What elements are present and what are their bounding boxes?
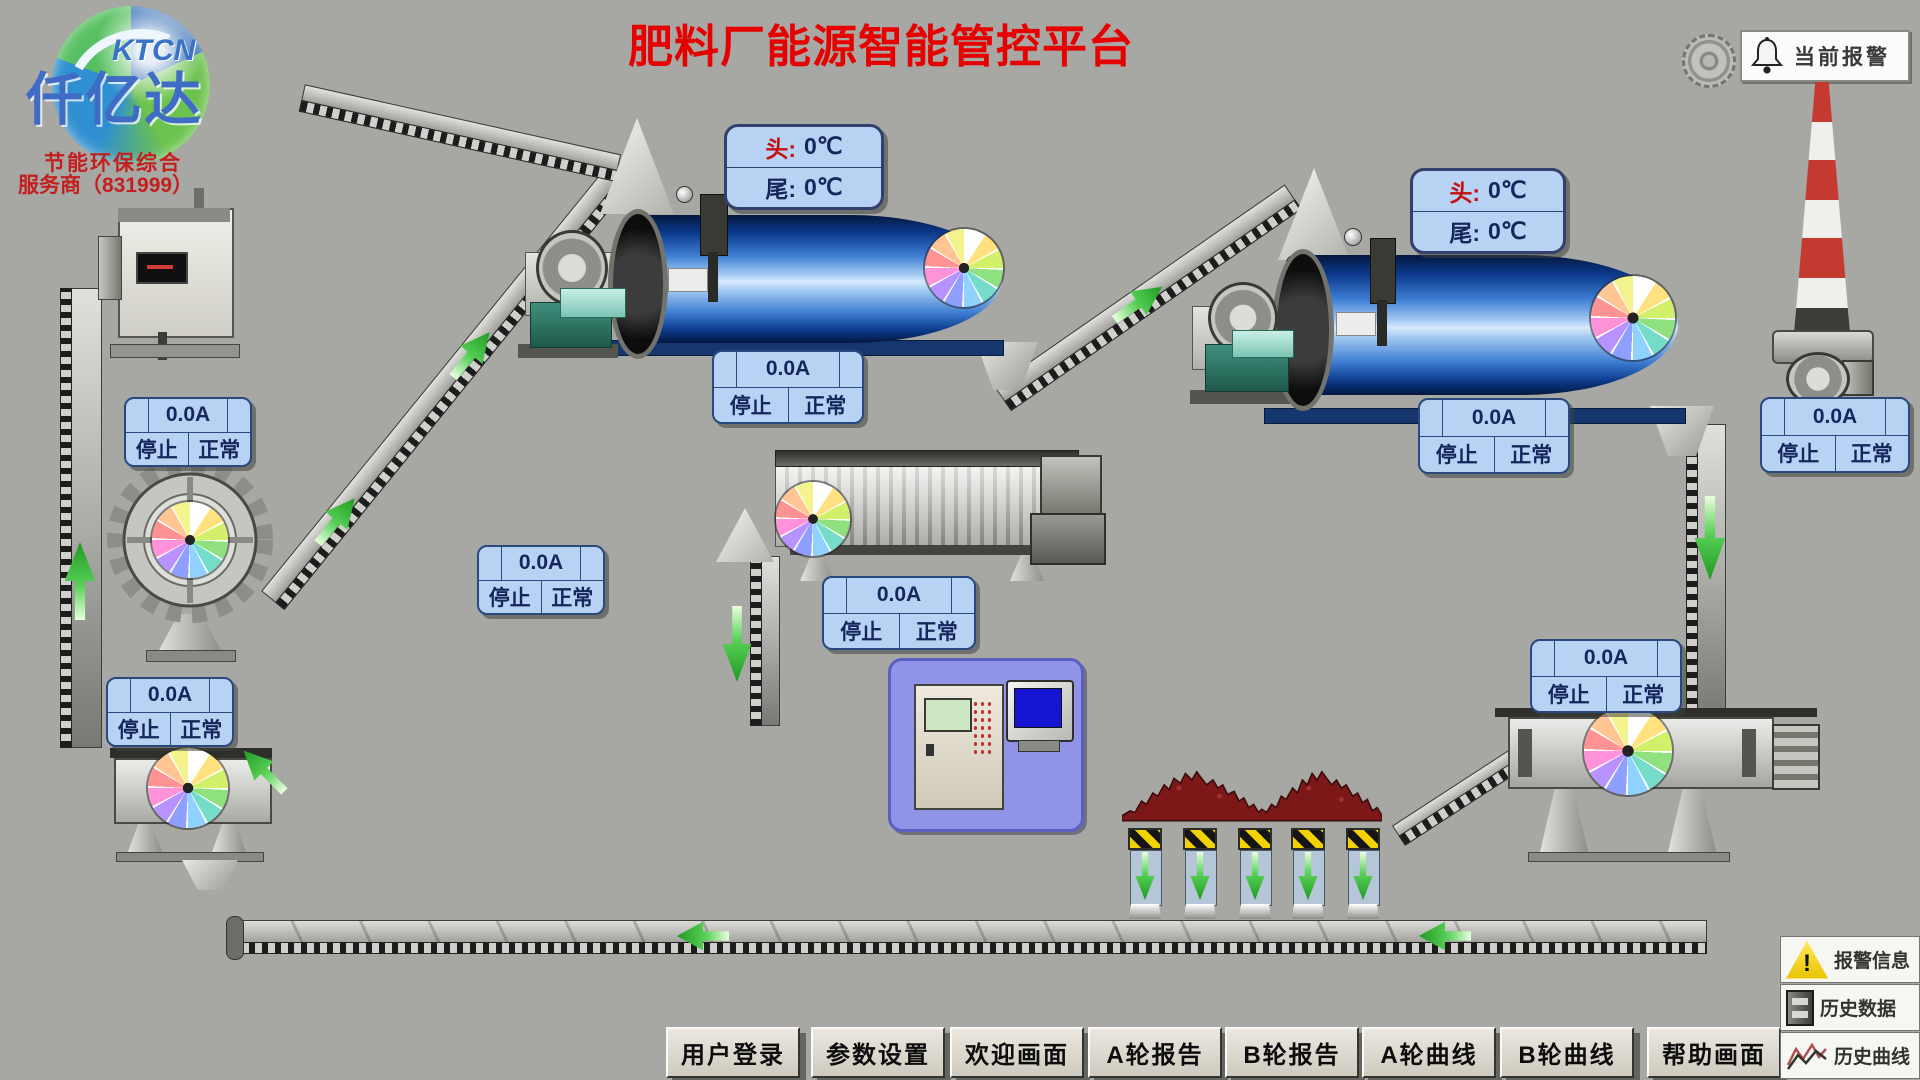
dryer-b-gauge-ball: [1344, 228, 1362, 246]
dryer-b-hatch: [1336, 312, 1376, 336]
material-piles: [1122, 758, 1382, 828]
bagging-station: [1183, 828, 1217, 920]
bottom-return-belt: [235, 920, 1707, 952]
nav-button-label: A轮曲线: [1380, 1035, 1477, 1070]
status-panel-right-screen: 0.0A 停止正常: [1530, 639, 1682, 713]
head-temp-value: 0℃: [1488, 177, 1527, 204]
hazard-stripe-block: [1183, 828, 1217, 850]
brand-cn-label: 仟亿达: [26, 54, 203, 136]
monitor-screen: [1014, 688, 1062, 728]
dryer-a-motor-top: [560, 288, 626, 318]
dryer-b-motor-top: [1232, 330, 1294, 358]
current-value: 0.0A: [131, 679, 209, 712]
bell-icon: [1750, 36, 1784, 76]
page-title: 肥料厂能源智能管控平台: [628, 10, 1134, 75]
hazard-stripe-block: [1346, 828, 1380, 850]
crusher-feed-chute: [716, 508, 774, 562]
hazard-stripe-block: [1128, 828, 1162, 850]
bagging-station: [1346, 828, 1380, 920]
current-alarm-button[interactable]: 当前报警: [1740, 30, 1910, 82]
feeder-base: [110, 344, 240, 358]
cabinet-button-grid: [972, 700, 994, 758]
temp-panel-dryer-a: 头: 0℃ 尾: 0℃: [724, 124, 884, 210]
nav-button-label: 帮助画面: [1662, 1035, 1766, 1070]
nav-button-welcome-screen[interactable]: 欢迎画面: [950, 1027, 1084, 1078]
health-state: 正常: [1836, 436, 1909, 472]
alarm-info-label: 报警信息: [1834, 946, 1910, 973]
status-panel-feed-conveyor: 0.0A 停止正常: [477, 545, 605, 615]
health-state: 正常: [189, 433, 251, 466]
nav-button-label: 参数设置: [826, 1035, 930, 1070]
run-state: 停止: [126, 433, 189, 466]
bagging-station: [1128, 828, 1162, 920]
dryer-b-sensor-rod: [1377, 300, 1387, 346]
nav-button-label: B轮曲线: [1518, 1035, 1615, 1070]
screen-right-drive-block: [1772, 724, 1820, 790]
current-value: 0.0A: [1443, 400, 1545, 436]
nav-button-label: 用户登录: [681, 1035, 785, 1070]
run-state: 停止: [1420, 437, 1495, 473]
conveyor-chain: [235, 942, 1707, 954]
dryer-a-sensor-rod: [708, 252, 718, 302]
run-state: 停止: [1762, 436, 1836, 472]
health-state: 正常: [1495, 437, 1569, 473]
head-temp-label: 头:: [765, 130, 796, 164]
feeder-pedestal-base: [146, 650, 236, 662]
screen-right-leg: [1668, 786, 1716, 852]
health-state: 正常: [171, 713, 233, 746]
status-panel-stack-fan: 0.0A 停止正常: [1760, 397, 1910, 473]
screen-left-leg: [212, 822, 246, 852]
crusher-feed-elevator: [752, 556, 780, 726]
archive-cabinet-icon: [1786, 990, 1814, 1026]
nav-button-parameter-settings[interactable]: 参数设置: [811, 1027, 945, 1078]
history-curve-button[interactable]: 历史曲线: [1780, 1032, 1920, 1079]
conveyor-chain: [750, 556, 762, 726]
feeder-valve-stack: [98, 236, 122, 300]
belt-end-drum: [226, 916, 244, 960]
cabinet-screen: [924, 698, 972, 732]
filled-bag: [1292, 904, 1324, 919]
current-value: 0.0A: [737, 352, 839, 387]
filled-bag: [1347, 904, 1379, 919]
health-state: 正常: [900, 614, 975, 649]
zigzag-curve-icon: [1786, 1041, 1828, 1071]
screen-right-base: [1528, 852, 1730, 862]
incline-conveyor-feeder-to-dryer-a: [261, 158, 635, 609]
screen-left-leg: [128, 822, 162, 852]
warning-exclamation: !: [1786, 950, 1828, 978]
top-feed-duct: [299, 84, 621, 180]
status-panel-left-screen: 0.0A 停止正常: [106, 677, 234, 747]
hazard-stripe-block: [1291, 828, 1325, 850]
nav-button-b-curve[interactable]: B轮曲线: [1500, 1027, 1634, 1078]
tail-temp-value: 0℃: [804, 174, 843, 201]
dryer-a-front-ring: [608, 209, 668, 359]
nav-button-label: A轮报告: [1106, 1035, 1203, 1070]
cabinet-handle: [926, 744, 934, 756]
dryer-a-gauge-ball: [676, 186, 693, 203]
hazard-stripe-block: [1238, 828, 1272, 850]
alarm-info-button[interactable]: ! 报警信息: [1780, 936, 1920, 983]
smokestack: [1794, 82, 1850, 334]
current-value: 0.0A: [1785, 399, 1885, 435]
nav-button-a-curve[interactable]: A轮曲线: [1362, 1027, 1496, 1078]
run-state: 停止: [108, 713, 171, 746]
status-panel-dryer-b: 0.0A 停止正常: [1418, 398, 1570, 474]
nav-button-user-login[interactable]: 用户登录: [666, 1027, 800, 1078]
dryer-b-pinwheel: [1591, 276, 1675, 360]
conveyor-chain: [299, 100, 618, 182]
conveyor-chain: [60, 288, 72, 748]
logo-tagline-line2: 服务商（831999）: [18, 169, 193, 199]
screen-right-leg: [1540, 786, 1588, 852]
run-state: 停止: [479, 581, 542, 614]
current-value: 0.0A: [1555, 641, 1657, 676]
status-panel-crusher: 0.0A 停止正常: [822, 576, 976, 650]
scada-screen: KTCN 仟亿达 节能环保综合 服务商（831999） 肥料厂能源智能管控平台 …: [0, 0, 1920, 1080]
health-state: 正常: [1607, 677, 1681, 712]
conveyor-chain: [1686, 424, 1698, 718]
warning-triangle-icon: !: [1786, 941, 1828, 979]
nav-button-help-screen[interactable]: 帮助画面: [1647, 1027, 1781, 1078]
crusher-top-rail: [775, 450, 1079, 467]
history-curve-label: 历史曲线: [1834, 1042, 1910, 1069]
status-panel-dryer-a: 0.0A 停止正常: [712, 350, 864, 424]
nav-button-label: B轮报告: [1243, 1035, 1340, 1070]
crusher-motor-upper: [1040, 455, 1102, 517]
rotary-feeder-pinwheel: [152, 502, 228, 578]
nav-button-b-report[interactable]: B轮报告: [1225, 1027, 1359, 1078]
screen-left-pinwheel: [148, 748, 228, 828]
tail-temp-value: 0℃: [1488, 218, 1527, 245]
feeder-display: [136, 252, 188, 284]
flow-arrow-down: [722, 606, 752, 682]
history-data-label: 历史数据: [1820, 994, 1896, 1021]
bagging-station: [1238, 828, 1272, 920]
dryer-b-sensor: [1370, 238, 1396, 304]
tail-temp-label: 尾:: [1449, 214, 1480, 248]
crusher-motor-lower: [1030, 513, 1106, 565]
run-state: 停止: [714, 388, 789, 423]
screen-left-discharge: [182, 860, 238, 890]
status-panel-rotary-feeder: 0.0A 停止正常: [124, 397, 252, 467]
current-value: 0.0A: [149, 399, 227, 432]
target-rings-icon: [1682, 34, 1736, 88]
head-temp-label: 头:: [1449, 174, 1480, 208]
filled-bag: [1239, 904, 1271, 919]
health-state: 正常: [542, 581, 604, 614]
filled-bag: [1129, 904, 1161, 919]
history-data-button[interactable]: 历史数据: [1780, 984, 1920, 1031]
dryer-a-sensor: [700, 194, 728, 256]
bucket-elevator-left: [62, 288, 102, 748]
run-state: 停止: [1532, 677, 1607, 712]
dryer-a-pinwheel: [925, 229, 1003, 307]
current-value: 0.0A: [502, 547, 580, 580]
crusher-pinwheel: [776, 482, 850, 556]
dryer-a-hatch: [668, 268, 708, 292]
dryer-b-motor-base: [1190, 390, 1294, 404]
run-state: 停止: [824, 614, 900, 649]
bagging-station: [1291, 828, 1325, 920]
head-temp-value: 0℃: [804, 133, 843, 160]
current-alarm-label: 当前报警: [1794, 41, 1890, 71]
nav-button-label: 欢迎画面: [965, 1035, 1069, 1070]
tail-temp-label: 尾:: [765, 170, 796, 204]
screen-right-pinwheel: [1584, 707, 1672, 795]
health-state: 正常: [789, 388, 863, 423]
feeder-vent: [194, 188, 204, 210]
current-value: 0.0A: [847, 578, 951, 613]
nav-button-a-report[interactable]: A轮报告: [1088, 1027, 1222, 1078]
filled-bag: [1184, 904, 1216, 919]
monitor-stand: [1018, 740, 1060, 752]
feeder-unit-lid: [118, 208, 230, 222]
temp-panel-dryer-b: 头: 0℃ 尾: 0℃: [1410, 168, 1566, 254]
